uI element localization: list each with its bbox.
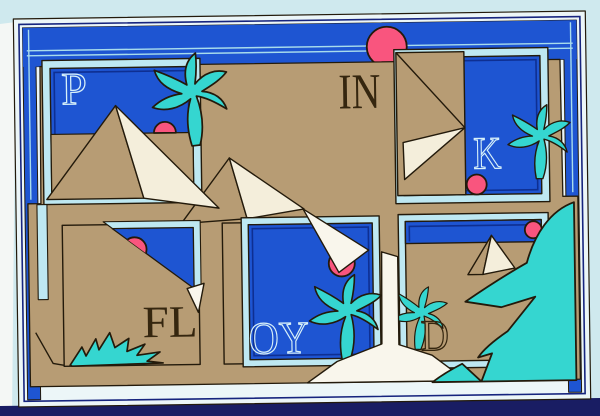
letter-oy: OY — [248, 312, 309, 364]
panel-d-sky — [405, 220, 541, 244]
letter-in: IN — [338, 63, 381, 120]
letter-fl: FL — [142, 296, 198, 347]
postcard-art: IN P — [0, 0, 600, 416]
postcard-photo: IN P — [0, 0, 600, 416]
letter-p: P — [61, 63, 87, 114]
panel-k: K — [394, 47, 571, 203]
letter-k: K — [473, 127, 502, 178]
card: IN P — [13, 11, 590, 407]
window-mullion — [37, 205, 48, 300]
panel-oy: OY — [222, 216, 382, 367]
